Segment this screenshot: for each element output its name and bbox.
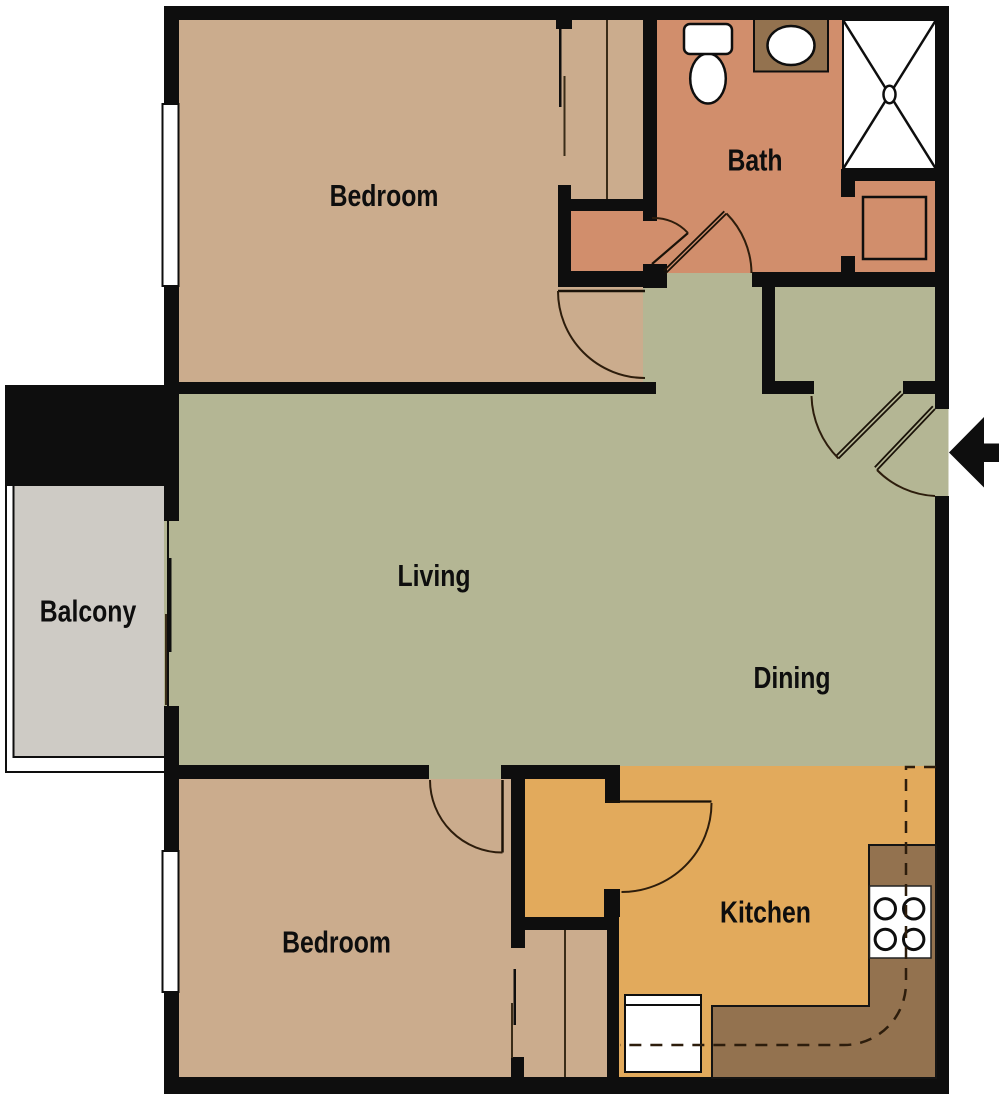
svg-text:Bedroom: Bedroom xyxy=(282,925,391,959)
svg-text:Bedroom: Bedroom xyxy=(330,178,439,212)
svg-text:Kitchen: Kitchen xyxy=(720,895,811,929)
svg-text:Dining: Dining xyxy=(753,660,830,694)
svg-text:Living: Living xyxy=(397,558,470,592)
svg-text:Balcony: Balcony xyxy=(40,594,137,628)
svg-text:Bath: Bath xyxy=(727,143,782,177)
